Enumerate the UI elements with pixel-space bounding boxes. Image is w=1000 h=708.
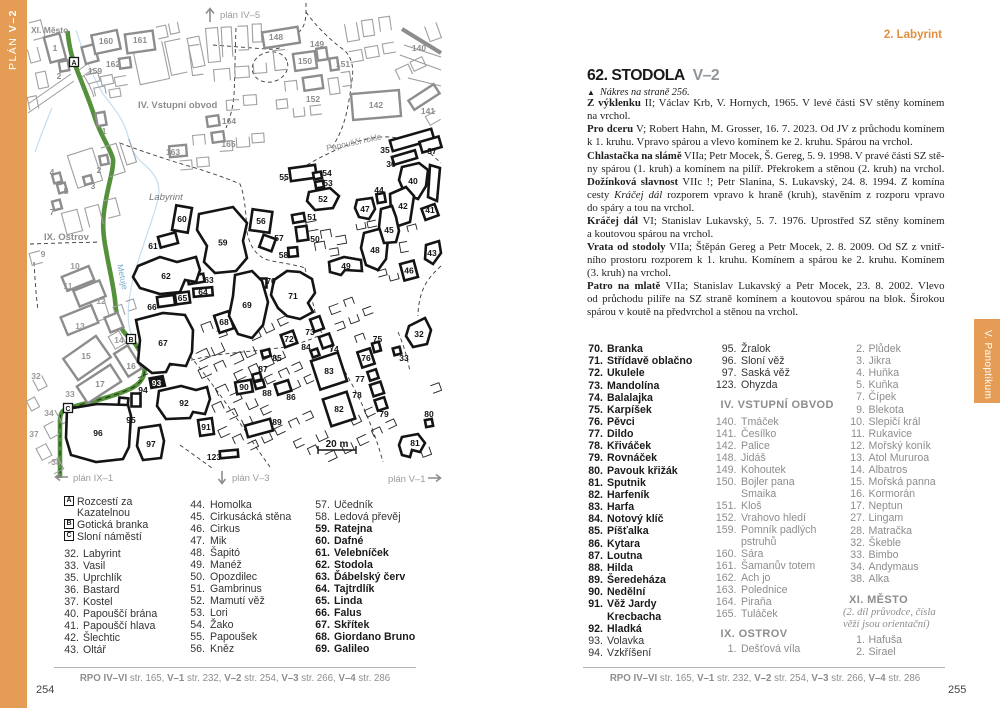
svg-text:20 m: 20 m bbox=[326, 439, 349, 450]
svg-text:32: 32 bbox=[31, 371, 41, 381]
svg-text:A: A bbox=[71, 60, 76, 67]
svg-text:162: 162 bbox=[106, 59, 120, 69]
svg-text:62: 62 bbox=[161, 271, 171, 281]
svg-text:94: 94 bbox=[138, 385, 148, 395]
svg-text:165: 165 bbox=[221, 139, 235, 149]
svg-text:33: 33 bbox=[399, 353, 409, 363]
svg-text:91: 91 bbox=[201, 422, 211, 432]
svg-text:160: 160 bbox=[99, 36, 113, 46]
svg-text:92: 92 bbox=[179, 398, 189, 408]
svg-text:142: 142 bbox=[369, 100, 383, 110]
svg-text:52: 52 bbox=[318, 194, 328, 204]
svg-text:46: 46 bbox=[404, 266, 414, 276]
svg-text:140: 140 bbox=[412, 43, 426, 53]
svg-text:40: 40 bbox=[408, 176, 418, 186]
svg-text:IX. Ostrov: IX. Ostrov bbox=[44, 232, 90, 243]
svg-text:33: 33 bbox=[65, 389, 75, 399]
svg-text:12: 12 bbox=[96, 296, 106, 306]
svg-text:72: 72 bbox=[284, 334, 294, 344]
svg-text:152: 152 bbox=[306, 94, 320, 104]
svg-text:50: 50 bbox=[310, 234, 320, 244]
svg-text:16: 16 bbox=[126, 361, 136, 371]
svg-text:35: 35 bbox=[380, 145, 390, 155]
svg-text:61: 61 bbox=[148, 241, 158, 251]
svg-text:2: 2 bbox=[57, 71, 62, 81]
svg-text:60: 60 bbox=[177, 214, 187, 224]
svg-text:123: 123 bbox=[207, 452, 221, 462]
svg-text:1: 1 bbox=[102, 126, 107, 136]
svg-text:89: 89 bbox=[272, 417, 282, 427]
svg-text:159: 159 bbox=[88, 66, 102, 76]
svg-text:42: 42 bbox=[398, 201, 408, 211]
svg-text:plán V–3: plán V–3 bbox=[232, 473, 270, 484]
svg-text:58: 58 bbox=[279, 250, 289, 260]
svg-text:Labyrint: Labyrint bbox=[149, 192, 183, 203]
svg-text:plán IV–5: plán IV–5 bbox=[220, 10, 260, 21]
svg-text:70: 70 bbox=[266, 276, 276, 286]
svg-text:90: 90 bbox=[239, 382, 249, 392]
svg-text:plán V–1: plán V–1 bbox=[388, 474, 426, 485]
svg-text:93: 93 bbox=[152, 378, 162, 388]
svg-text:74: 74 bbox=[329, 344, 339, 354]
svg-text:150: 150 bbox=[298, 56, 312, 66]
svg-text:47: 47 bbox=[360, 204, 370, 214]
svg-text:34: 34 bbox=[44, 408, 54, 418]
svg-text:57: 57 bbox=[274, 233, 284, 243]
svg-text:151: 151 bbox=[336, 59, 350, 69]
svg-text:49: 49 bbox=[341, 261, 351, 271]
svg-text:161: 161 bbox=[133, 35, 147, 45]
svg-text:37: 37 bbox=[427, 146, 437, 156]
svg-text:IV. Vstupní obvod: IV. Vstupní obvod bbox=[138, 100, 218, 111]
svg-text:56: 56 bbox=[256, 216, 266, 226]
svg-text:55: 55 bbox=[279, 172, 289, 182]
svg-text:73: 73 bbox=[305, 327, 315, 337]
svg-text:54: 54 bbox=[322, 168, 332, 178]
svg-text:45: 45 bbox=[384, 225, 394, 235]
svg-text:141: 141 bbox=[421, 106, 435, 116]
svg-text:32: 32 bbox=[414, 329, 424, 339]
svg-text:B: B bbox=[128, 337, 133, 344]
svg-text:68: 68 bbox=[219, 317, 229, 327]
svg-text:88: 88 bbox=[262, 388, 272, 398]
svg-text:69: 69 bbox=[242, 300, 252, 310]
svg-text:37: 37 bbox=[29, 429, 39, 439]
svg-text:149: 149 bbox=[310, 39, 324, 49]
svg-text:96: 96 bbox=[93, 428, 103, 438]
svg-text:67: 67 bbox=[158, 338, 168, 348]
svg-text:76: 76 bbox=[361, 353, 371, 363]
svg-text:83: 83 bbox=[324, 366, 334, 376]
svg-text:3: 3 bbox=[91, 181, 96, 191]
svg-text:11: 11 bbox=[64, 281, 73, 291]
svg-text:84: 84 bbox=[301, 342, 311, 352]
svg-text:64: 64 bbox=[198, 287, 208, 297]
svg-text:79: 79 bbox=[379, 409, 389, 419]
svg-text:38: 38 bbox=[51, 457, 61, 467]
svg-text:75: 75 bbox=[373, 334, 383, 344]
svg-text:2: 2 bbox=[97, 165, 102, 175]
svg-text:48: 48 bbox=[370, 245, 380, 255]
svg-text:163: 163 bbox=[166, 147, 180, 157]
svg-text:15: 15 bbox=[81, 351, 91, 361]
svg-text:1: 1 bbox=[53, 43, 58, 53]
svg-text:36: 36 bbox=[386, 159, 396, 169]
svg-text:5: 5 bbox=[64, 186, 69, 196]
svg-text:66: 66 bbox=[147, 302, 157, 312]
svg-text:97: 97 bbox=[146, 439, 156, 449]
svg-text:14: 14 bbox=[114, 335, 124, 345]
svg-text:plán IX–1: plán IX–1 bbox=[73, 473, 113, 484]
svg-text:17: 17 bbox=[95, 379, 105, 389]
svg-text:44: 44 bbox=[374, 185, 384, 195]
svg-text:86: 86 bbox=[286, 392, 296, 402]
svg-text:53: 53 bbox=[323, 178, 333, 188]
svg-text:51: 51 bbox=[307, 212, 317, 222]
svg-text:43: 43 bbox=[427, 248, 437, 258]
svg-text:9: 9 bbox=[41, 249, 46, 259]
svg-text:71: 71 bbox=[288, 291, 298, 301]
svg-text:148: 148 bbox=[269, 32, 283, 42]
svg-text:87: 87 bbox=[258, 364, 268, 374]
svg-text:82: 82 bbox=[334, 404, 344, 414]
svg-text:85: 85 bbox=[272, 353, 282, 363]
svg-text:10: 10 bbox=[70, 261, 80, 271]
svg-text:164: 164 bbox=[222, 116, 236, 126]
svg-text:4: 4 bbox=[50, 167, 55, 177]
svg-text:77: 77 bbox=[355, 374, 365, 384]
svg-text:41: 41 bbox=[425, 205, 435, 215]
svg-text:13: 13 bbox=[75, 321, 85, 331]
svg-text:63: 63 bbox=[204, 275, 214, 285]
svg-text:81: 81 bbox=[410, 438, 420, 448]
svg-text:80: 80 bbox=[424, 409, 434, 419]
svg-text:7: 7 bbox=[50, 207, 55, 217]
svg-text:59: 59 bbox=[218, 238, 228, 248]
svg-text:C: C bbox=[65, 406, 70, 413]
svg-text:65: 65 bbox=[178, 293, 188, 303]
svg-text:Metuje: Metuje bbox=[115, 263, 130, 290]
svg-text:Papouščí rokle: Papouščí rokle bbox=[325, 131, 382, 153]
svg-text:95: 95 bbox=[126, 415, 136, 425]
svg-text:XI. Město: XI. Město bbox=[31, 25, 68, 35]
svg-text:78: 78 bbox=[352, 390, 362, 400]
